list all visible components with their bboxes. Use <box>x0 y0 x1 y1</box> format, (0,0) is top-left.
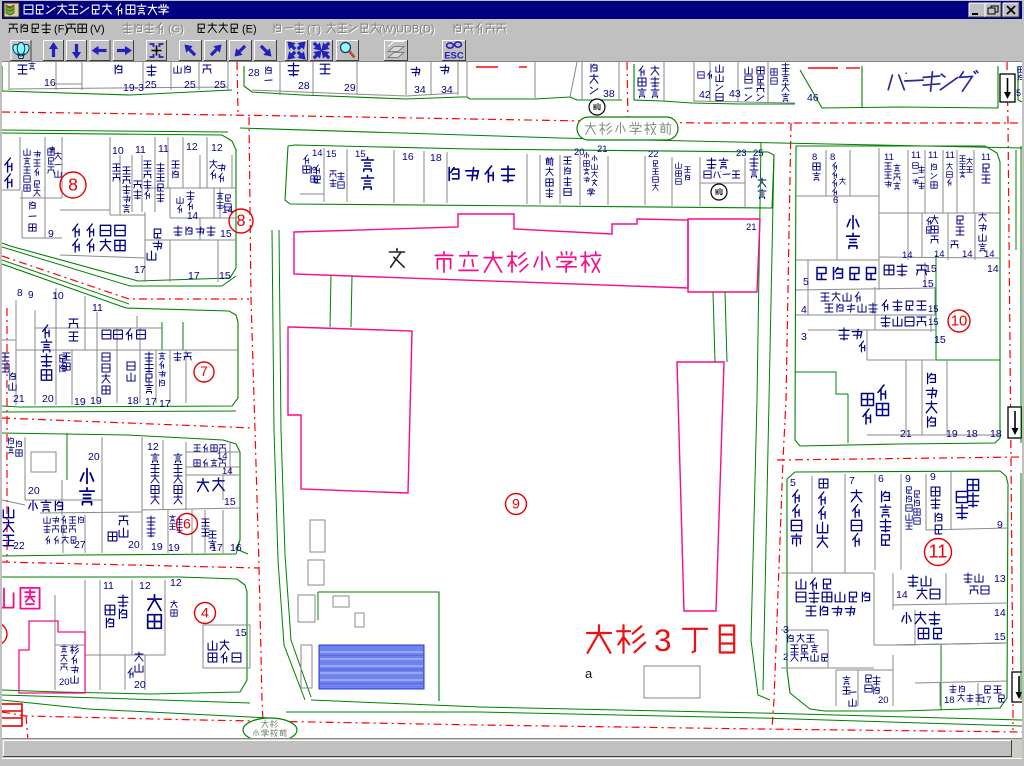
svg-text:9: 9 <box>997 519 1003 531</box>
svg-text:15: 15 <box>928 317 939 328</box>
svg-text:8: 8 <box>830 152 835 163</box>
svg-text:25: 25 <box>214 79 226 91</box>
svg-text:11: 11 <box>928 150 938 161</box>
svg-text:23: 23 <box>736 148 747 159</box>
svg-text:46: 46 <box>807 92 819 104</box>
svg-text:15: 15 <box>934 334 946 346</box>
svg-text:12: 12 <box>147 441 159 453</box>
svg-text:19: 19 <box>151 541 163 553</box>
svg-text:19: 19 <box>74 396 86 408</box>
svg-text:11: 11 <box>103 580 114 592</box>
svg-text:14: 14 <box>312 148 323 159</box>
svg-text:15: 15 <box>326 149 337 160</box>
svg-text:19: 19 <box>90 395 102 407</box>
svg-text:11: 11 <box>135 144 146 156</box>
svg-text:11: 11 <box>92 302 103 314</box>
svg-text:11: 11 <box>884 152 894 163</box>
svg-text:6: 6 <box>183 516 191 532</box>
svg-text:14: 14 <box>187 211 199 222</box>
svg-text:4: 4 <box>801 304 807 316</box>
svg-text:17: 17 <box>145 396 157 408</box>
svg-text:28: 28 <box>298 80 310 92</box>
svg-text:18: 18 <box>966 428 978 440</box>
svg-text:a: a <box>585 666 593 681</box>
svg-text:34: 34 <box>441 84 453 96</box>
svg-text:9: 9 <box>28 290 34 301</box>
svg-text:18: 18 <box>944 695 955 706</box>
svg-text:7: 7 <box>849 475 855 487</box>
svg-text:11: 11 <box>981 152 991 163</box>
svg-text:21: 21 <box>597 144 608 155</box>
svg-text:8: 8 <box>68 175 78 195</box>
svg-text:(G): (G) <box>168 24 184 36</box>
svg-text:14: 14 <box>222 466 233 477</box>
svg-text:17: 17 <box>981 695 992 706</box>
svg-text:17: 17 <box>211 542 223 554</box>
svg-text:(T): (T) <box>307 24 321 36</box>
svg-text:21: 21 <box>900 428 912 440</box>
svg-text:19: 19 <box>168 542 180 554</box>
svg-text:20: 20 <box>574 147 585 158</box>
svg-text:43: 43 <box>729 88 741 100</box>
svg-text:(F): (F) <box>54 24 68 36</box>
svg-text:5: 5 <box>1016 88 1021 98</box>
svg-text:(E): (E) <box>242 24 257 36</box>
svg-text:6: 6 <box>878 473 884 485</box>
svg-text:27: 27 <box>74 539 86 551</box>
svg-text:38: 38 <box>603 88 615 100</box>
svg-text:16: 16 <box>44 77 56 89</box>
svg-text:14: 14 <box>896 589 908 601</box>
svg-text:25: 25 <box>145 79 157 91</box>
svg-text:15: 15 <box>928 304 939 315</box>
svg-text:15: 15 <box>219 270 231 282</box>
svg-text:20: 20 <box>28 485 40 497</box>
svg-text:4: 4 <box>201 605 209 621</box>
svg-text:15: 15 <box>220 228 232 240</box>
svg-text:20: 20 <box>88 451 100 463</box>
svg-text:15: 15 <box>922 278 934 290</box>
svg-text:11: 11 <box>911 150 921 161</box>
svg-text:11: 11 <box>158 143 169 155</box>
svg-text:15: 15 <box>355 149 366 160</box>
svg-text:21: 21 <box>13 393 25 405</box>
svg-text:20: 20 <box>42 393 54 405</box>
svg-text:16: 16 <box>230 542 242 554</box>
svg-text:8: 8 <box>236 212 245 230</box>
svg-text:17: 17 <box>159 398 171 410</box>
svg-text:21: 21 <box>746 222 757 233</box>
svg-text:12: 12 <box>186 141 198 153</box>
svg-text:9: 9 <box>930 471 936 483</box>
svg-text:25: 25 <box>753 148 764 159</box>
svg-text:8: 8 <box>17 288 23 299</box>
svg-text:14: 14 <box>987 263 999 275</box>
svg-text:15: 15 <box>925 263 937 275</box>
svg-text:7: 7 <box>200 364 208 379</box>
svg-text:14: 14 <box>962 249 973 260</box>
svg-text:14: 14 <box>902 250 913 261</box>
svg-text:16: 16 <box>402 151 414 163</box>
svg-text:14: 14 <box>984 249 995 260</box>
svg-text:18: 18 <box>430 152 442 164</box>
svg-text:18: 18 <box>990 428 1002 440</box>
svg-text:3: 3 <box>654 622 672 658</box>
svg-text:14: 14 <box>934 249 945 260</box>
svg-text:3: 3 <box>801 331 807 343</box>
svg-text:13: 13 <box>994 573 1006 585</box>
svg-text:20: 20 <box>128 539 140 551</box>
svg-text:11: 11 <box>929 542 948 562</box>
svg-text:15: 15 <box>994 631 1006 643</box>
svg-text:5: 5 <box>790 477 796 489</box>
svg-text:UDB(D): UDB(D) <box>396 24 435 36</box>
svg-text:17: 17 <box>134 264 146 276</box>
svg-text:8: 8 <box>812 152 817 163</box>
svg-text:29: 29 <box>344 82 356 94</box>
svg-text:15: 15 <box>224 496 236 508</box>
svg-text:12: 12 <box>170 577 182 589</box>
svg-text:42: 42 <box>699 89 711 101</box>
svg-text:22: 22 <box>13 540 25 552</box>
svg-text:14: 14 <box>994 607 1006 619</box>
svg-text:20: 20 <box>59 677 70 688</box>
svg-text:5: 5 <box>803 276 809 288</box>
svg-text:20: 20 <box>134 679 146 691</box>
svg-text:10: 10 <box>52 290 64 302</box>
svg-text:25: 25 <box>184 79 196 91</box>
svg-text:28: 28 <box>248 67 260 79</box>
svg-text:19-3: 19-3 <box>123 82 144 94</box>
svg-text:11: 11 <box>945 150 955 161</box>
svg-text:9: 9 <box>48 228 54 240</box>
svg-text:17: 17 <box>188 270 200 282</box>
svg-text:3: 3 <box>783 624 789 636</box>
svg-text:2: 2 <box>783 652 788 663</box>
svg-text:12: 12 <box>139 580 151 592</box>
svg-text:ESC: ESC <box>444 51 464 62</box>
svg-text:6: 6 <box>833 195 838 206</box>
svg-text:10: 10 <box>951 314 968 330</box>
svg-text:19: 19 <box>946 428 958 440</box>
svg-text:22: 22 <box>648 149 659 160</box>
svg-text:12: 12 <box>211 142 223 154</box>
svg-text:15: 15 <box>235 627 247 639</box>
svg-text:(V): (V) <box>90 24 105 36</box>
svg-text:20: 20 <box>878 695 889 706</box>
svg-text:34: 34 <box>414 84 426 96</box>
svg-text:9: 9 <box>512 496 520 512</box>
svg-text:18: 18 <box>127 395 139 407</box>
svg-text:10: 10 <box>112 145 124 157</box>
svg-text:9: 9 <box>905 473 911 485</box>
svg-text:(W): (W) <box>379 24 397 36</box>
